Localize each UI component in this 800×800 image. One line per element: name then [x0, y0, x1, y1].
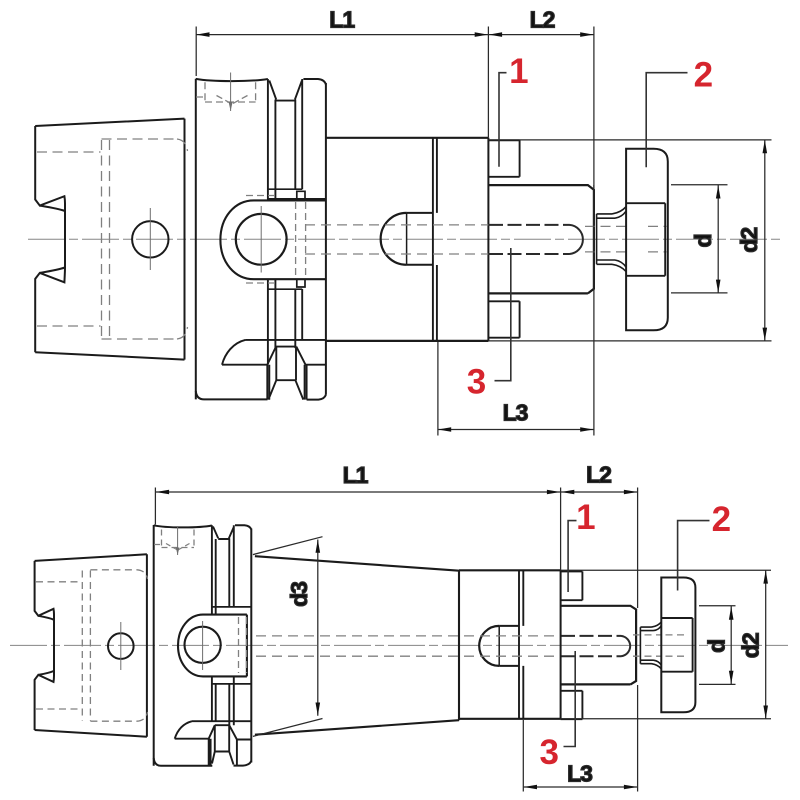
svg-text:d2: d2	[737, 633, 763, 658]
svg-text:d: d	[690, 234, 716, 247]
svg-text:L3: L3	[567, 761, 592, 787]
svg-text:1: 1	[509, 52, 528, 91]
svg-text:d: d	[704, 640, 730, 653]
svg-text:2: 2	[694, 56, 713, 95]
svg-text:L1: L1	[343, 462, 369, 488]
svg-text:L2: L2	[530, 7, 555, 33]
svg-text:d3: d3	[286, 582, 312, 607]
svg-text:L3: L3	[503, 400, 528, 426]
svg-text:L2: L2	[586, 462, 611, 488]
svg-text:3: 3	[467, 363, 486, 402]
svg-text:2: 2	[712, 500, 731, 539]
svg-text:3: 3	[539, 733, 558, 772]
svg-text:L1: L1	[329, 7, 355, 33]
svg-text:1: 1	[576, 498, 595, 537]
svg-text:d2: d2	[736, 228, 762, 253]
